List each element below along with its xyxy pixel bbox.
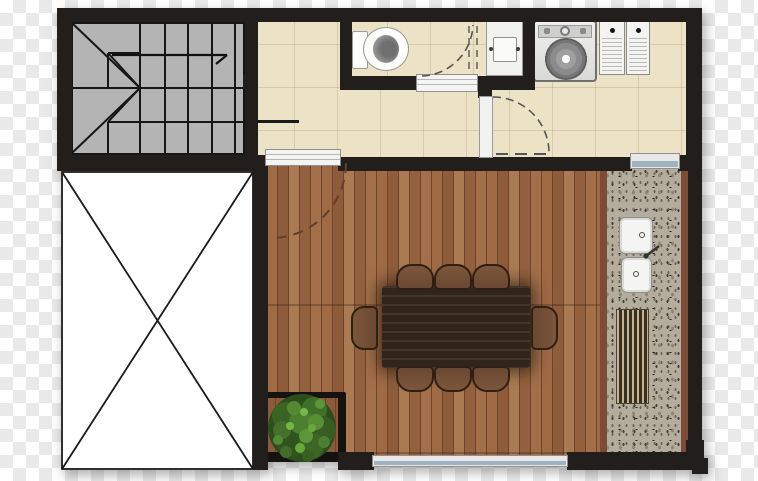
tap-icon xyxy=(489,47,493,51)
staircase-linework xyxy=(71,22,245,155)
wall-bottom-left xyxy=(338,452,374,470)
grill-drain xyxy=(616,309,649,404)
knob-icon xyxy=(610,28,615,33)
dining-chair xyxy=(396,366,434,392)
dining-chair xyxy=(434,264,472,290)
wall-deck-top xyxy=(338,157,632,171)
wall-void-right xyxy=(253,155,268,470)
toilet-bowl-inner xyxy=(373,35,399,63)
wall-under-stairs xyxy=(57,155,268,171)
toilet xyxy=(352,26,412,74)
laundry-tub-basin xyxy=(493,37,517,62)
window-glass xyxy=(374,461,566,466)
dining-chair xyxy=(472,366,510,392)
drain-icon xyxy=(639,232,645,238)
window-counter xyxy=(630,153,680,169)
void-x-cross xyxy=(61,171,254,470)
dining-chair xyxy=(351,306,378,350)
counter-sink-2 xyxy=(621,257,652,293)
washing-machine xyxy=(533,20,597,82)
stair-direction-arrow xyxy=(112,55,227,64)
dining-chair xyxy=(472,264,510,290)
sliding-threshold-hall-deck xyxy=(265,149,341,166)
washer-dial xyxy=(560,26,570,36)
window-glass xyxy=(632,161,678,167)
staircase xyxy=(71,22,245,155)
window-bottom xyxy=(372,455,568,467)
laundry-door-leaf xyxy=(479,96,493,158)
wall-corner-notch xyxy=(692,458,708,474)
stair-rail-line xyxy=(257,120,299,123)
dining-chair xyxy=(531,306,558,350)
louver-slats xyxy=(629,38,647,72)
tap-icon xyxy=(516,47,520,51)
wall-bottom-right xyxy=(567,452,704,470)
washer-knob xyxy=(544,28,550,34)
drain-icon xyxy=(633,271,639,277)
wall-right-lower xyxy=(688,163,702,462)
washer-control-panel xyxy=(538,25,592,38)
dining-chair xyxy=(434,366,472,392)
dining-chair xyxy=(396,264,434,290)
louver-slats xyxy=(602,38,622,72)
washer-knob xyxy=(580,28,586,34)
bathroom-door-threshold xyxy=(416,74,478,92)
void-room xyxy=(61,171,254,470)
floor-plan-canvas xyxy=(0,0,758,481)
knob-icon xyxy=(636,28,641,33)
wall-left xyxy=(57,8,72,171)
louver-door xyxy=(626,21,650,75)
faucet-icon xyxy=(640,242,664,262)
dining-table xyxy=(382,286,530,368)
louver-door xyxy=(599,21,625,75)
wall-stair-newel xyxy=(243,75,257,89)
wall-bathroom-bottom-left xyxy=(340,76,420,90)
washer-drum xyxy=(544,38,588,80)
laundry-tub-slab xyxy=(486,20,523,76)
wall-right-upper xyxy=(686,8,702,171)
floor-plan xyxy=(0,0,758,481)
wall-top xyxy=(57,8,702,22)
